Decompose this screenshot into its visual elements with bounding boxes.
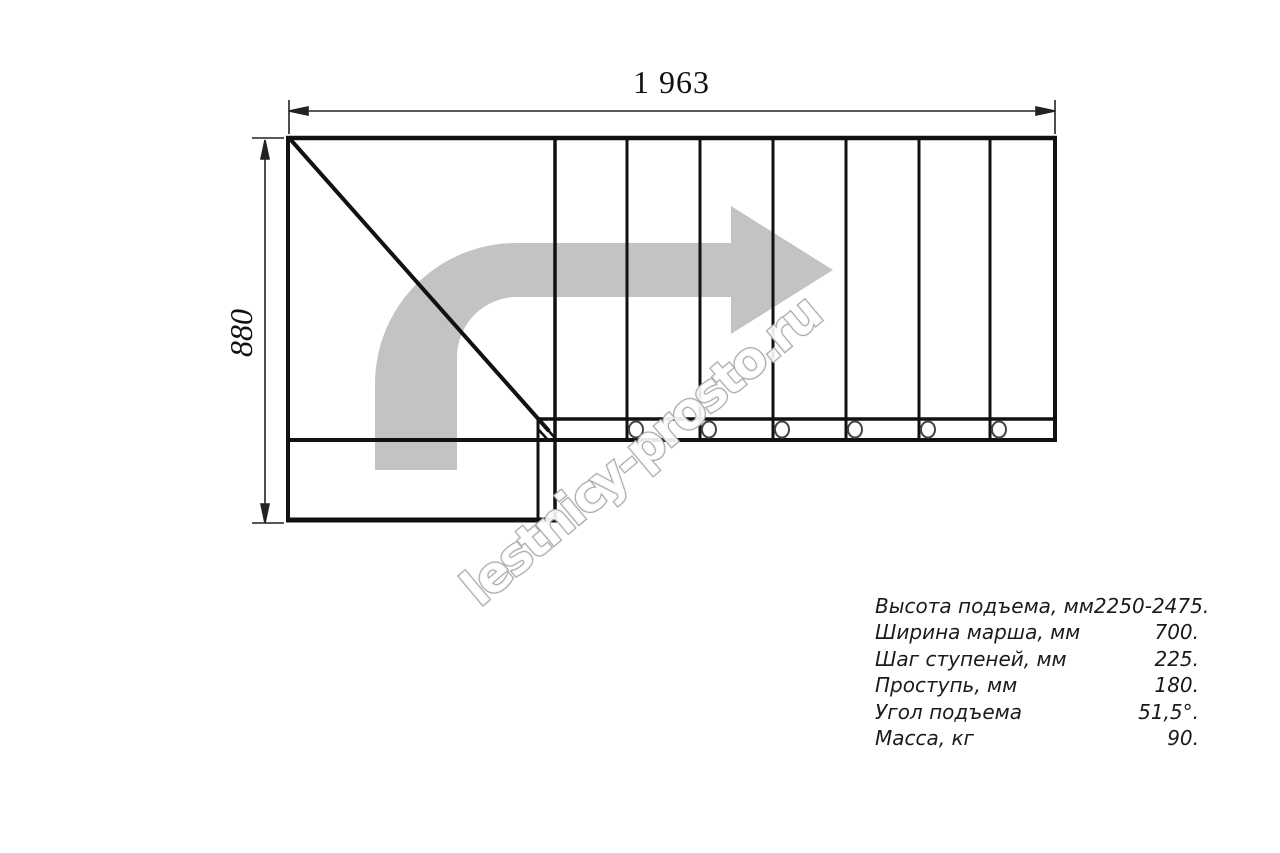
spec-row: Проступь, мм180. — [875, 672, 1199, 698]
dim-arrow-right-icon — [1036, 107, 1055, 115]
watermark-text: lestnicy-prosto.ru — [450, 284, 831, 617]
spec-value: 2250-2475. — [1094, 593, 1209, 619]
spec-label: Масса, кг — [875, 725, 974, 751]
bolt-circle — [921, 422, 935, 438]
dim-arrow-up-icon — [261, 140, 269, 159]
bolt-circle — [992, 422, 1006, 438]
spec-value: 90. — [1167, 725, 1199, 751]
specifications-table: Высота подъема, мм2250-2475.Ширина марша… — [875, 593, 1199, 751]
bolt-circle — [775, 422, 789, 438]
spec-row: Шаг ступеней, мм225. — [875, 646, 1199, 672]
height-dimension-label: 880 — [223, 295, 257, 371]
spec-row: Высота подъема, мм2250-2475. — [875, 593, 1199, 619]
dim-arrow-down-icon — [261, 504, 269, 523]
spec-value: 180. — [1154, 672, 1199, 698]
spec-row: Угол подъема51,5°. — [875, 699, 1199, 725]
spec-label: Проступь, мм — [875, 672, 1017, 698]
spec-value: 700. — [1154, 619, 1199, 645]
spec-row: Масса, кг90. — [875, 725, 1199, 751]
spec-label: Угол подъема — [875, 699, 1022, 725]
dim-arrow-left-icon — [289, 107, 308, 115]
spec-label: Высота подъема, мм — [875, 593, 1094, 619]
width-dimension-label: 1 963 — [288, 64, 1055, 101]
staircase-plan-page: lestnicy-prosto.ru 1 963 880 Высота подъ… — [0, 0, 1280, 853]
spec-value: 225. — [1154, 646, 1199, 672]
spec-value: 51,5°. — [1138, 699, 1199, 725]
spec-label: Шаг ступеней, мм — [875, 646, 1067, 672]
bolt-circle — [848, 422, 862, 438]
spec-row: Ширина марша, мм700. — [875, 619, 1199, 645]
spec-label: Ширина марша, мм — [875, 619, 1080, 645]
